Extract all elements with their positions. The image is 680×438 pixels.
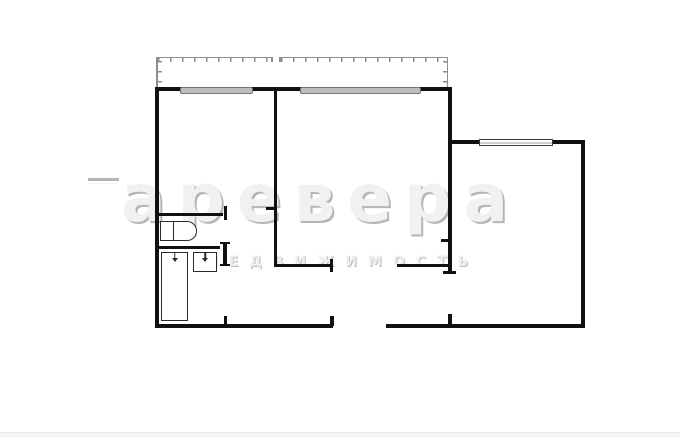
wall-hall-right xyxy=(397,264,449,268)
wall-rooms-divider xyxy=(274,87,277,267)
toilet-bowl xyxy=(174,221,197,241)
balcony-gap-tick-left xyxy=(271,57,273,62)
balcony-ticks-top-left xyxy=(158,58,272,62)
balcony-ticks-left-v xyxy=(158,61,162,86)
jamb-divider-door xyxy=(266,207,274,210)
wall-left xyxy=(155,87,159,328)
jamb-wc-door xyxy=(224,206,228,220)
balcony-ticks-top-right xyxy=(281,58,446,62)
tick-bath-door-bottom xyxy=(224,316,228,328)
floor-plan-page: аревера НЕДВИЖИМОСТЬ xyxy=(0,0,680,438)
floor-plan xyxy=(0,0,680,438)
tick-entry-door-left xyxy=(330,316,334,326)
wall-right-main xyxy=(448,87,452,273)
window-3 xyxy=(479,139,553,146)
wall-bottom-right xyxy=(386,324,585,328)
wall-bottom-left xyxy=(155,324,333,328)
bathtub-tap xyxy=(172,253,178,262)
balcony-gap-tick-right xyxy=(279,57,281,62)
window-2 xyxy=(300,87,421,94)
footer-strip xyxy=(0,432,680,438)
balcony-ticks-right-v xyxy=(443,61,447,86)
window-1 xyxy=(180,87,253,94)
jamb-kitchen-door-top xyxy=(443,271,456,274)
sink-tap xyxy=(202,253,208,262)
toilet-tank xyxy=(160,221,174,241)
balcony-rail-right xyxy=(447,57,449,87)
wall-right-outer xyxy=(581,140,585,328)
jamb-bath-cap-bottom xyxy=(220,264,230,267)
wall-bath-right-stub xyxy=(223,242,227,266)
wall-hall-left xyxy=(275,264,332,268)
tick-kitchen-wall xyxy=(441,239,450,242)
wall-bath-top xyxy=(157,246,220,249)
jamb-hall-door-left xyxy=(330,259,334,272)
wall-wc-top xyxy=(157,213,223,216)
tick-kitchen-door-bottom xyxy=(448,314,452,326)
